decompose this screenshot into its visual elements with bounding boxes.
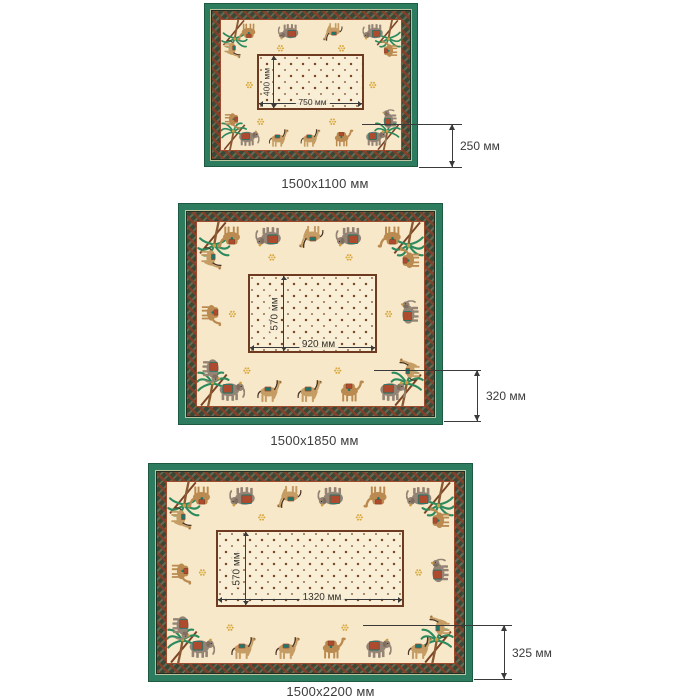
tablecloth-preview-large: 570 мм 1320 мм (148, 463, 473, 682)
flower-dot-icon (257, 118, 264, 124)
extension-line-top (363, 625, 512, 626)
elephant-icon (363, 24, 383, 39)
elephant-icon (366, 639, 391, 658)
flower-dot-icon (277, 45, 284, 51)
elephant-icon (239, 130, 259, 145)
border-width-label: 325 мм (512, 646, 552, 660)
center-dotted-panel: 400 мм 750 мм (257, 54, 364, 110)
center-height-label: 570 мм (270, 295, 281, 332)
tablecloth-preview-medium: 570 мм 920 мм (178, 203, 443, 425)
flower-dot-icon (341, 624, 348, 630)
border-width-label: 320 мм (486, 389, 526, 403)
size-caption-medium: 1500x1850 мм (182, 433, 447, 448)
center-dotted-panel: 570 мм 1320 мм (216, 530, 404, 607)
camel-icon (364, 487, 387, 508)
camel-icon (400, 247, 419, 268)
horse-icon (408, 637, 432, 659)
horse-icon (277, 486, 301, 508)
flower-dot-icon (346, 254, 353, 260)
tablecloth-preview-small: 400 мм 750 мм (204, 3, 418, 167)
camel-icon (172, 564, 191, 585)
extension-line-bottom (419, 167, 462, 168)
center-width-label: 1320 мм (300, 592, 345, 603)
extension-line-bottom (474, 679, 512, 680)
flower-dot-icon (258, 514, 265, 520)
flower-dot-icon (415, 569, 422, 575)
flower-dot-icon (229, 311, 236, 317)
product-size-diagram: 400 мм 750 мм 250 мм 1500x1100 мм 570 мм… (0, 0, 700, 700)
horse-icon (301, 129, 320, 146)
flower-dot-icon (329, 118, 336, 124)
height-dimension-line (283, 276, 284, 351)
elephant-icon (278, 24, 298, 39)
camel-icon (202, 305, 221, 326)
flower-dot-icon (385, 311, 392, 317)
flower-dot-icon (246, 82, 253, 88)
flower-dot-icon (338, 45, 345, 51)
horse-icon (323, 23, 342, 40)
size-caption-small: 1500x1100 мм (218, 176, 432, 191)
camel-icon (335, 130, 353, 147)
flower-dot-icon (199, 569, 206, 575)
elephant-icon (401, 301, 419, 324)
extension-line-top (374, 370, 481, 371)
center-height-label: 400 мм (262, 66, 271, 98)
flower-dot-icon (334, 367, 341, 373)
camel-icon (225, 113, 240, 130)
elephant-icon (431, 559, 449, 582)
center-dotted-panel: 570 мм 920 мм (248, 274, 377, 353)
flower-dot-icon (227, 624, 234, 630)
camel-icon (341, 380, 364, 401)
elephant-icon (336, 227, 361, 246)
center-height-label: 570 мм (232, 550, 243, 587)
camel-icon (323, 637, 346, 658)
elephant-icon (190, 639, 215, 658)
border-dimension-arrow (477, 370, 478, 421)
elephant-icon (318, 487, 343, 506)
center-width-label: 750 мм (295, 98, 329, 107)
height-dimension-line (273, 56, 274, 108)
extension-line-bottom (444, 421, 481, 422)
camel-icon (382, 40, 397, 57)
size-caption-large: 1500x2200 мм (168, 684, 493, 699)
border-dimension-arrow (452, 124, 453, 167)
horse-icon (298, 380, 322, 402)
flower-dot-icon (243, 367, 250, 373)
horse-icon (299, 226, 323, 248)
horse-icon (276, 637, 300, 659)
camel-icon (430, 507, 449, 528)
extension-line-top (362, 124, 462, 125)
elephant-icon (383, 110, 397, 128)
elephant-icon (256, 227, 281, 246)
horse-icon (258, 380, 282, 402)
elephant-icon (230, 487, 255, 506)
horse-icon (269, 129, 288, 146)
elephant-icon (220, 382, 245, 401)
border-dimension-arrow (504, 625, 505, 679)
border-width-label: 250 мм (460, 139, 500, 153)
height-dimension-line (245, 532, 246, 605)
horse-icon (232, 637, 256, 659)
flower-dot-icon (369, 82, 376, 88)
flower-dot-icon (356, 514, 363, 520)
center-width-label: 920 мм (299, 339, 338, 350)
flower-dot-icon (268, 254, 275, 260)
camel-icon (378, 227, 401, 248)
elephant-icon (407, 487, 432, 506)
